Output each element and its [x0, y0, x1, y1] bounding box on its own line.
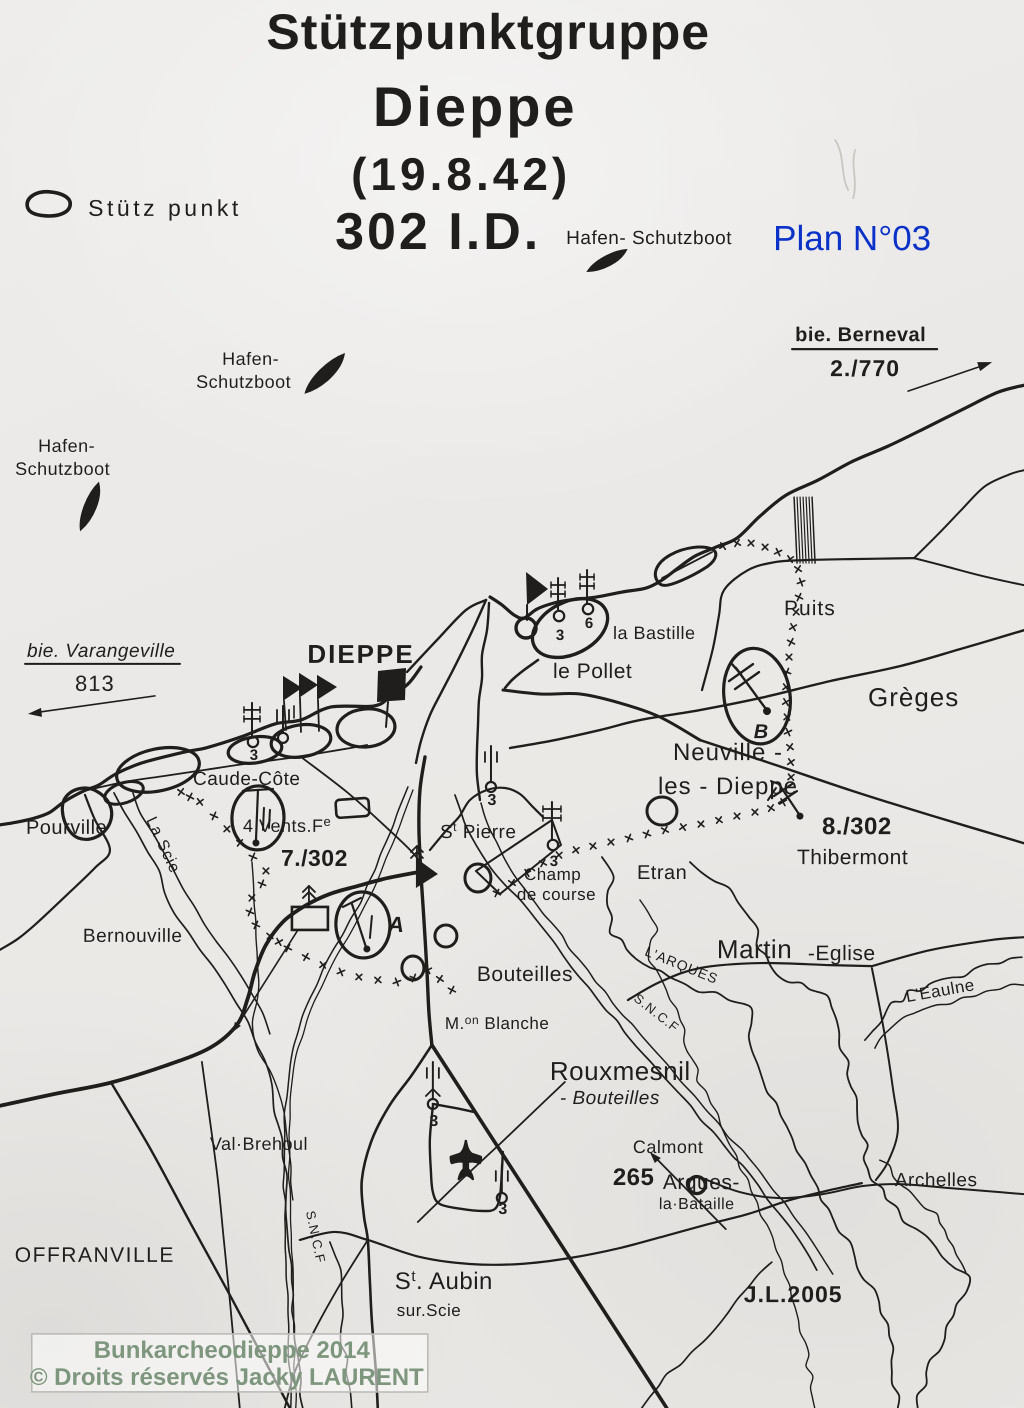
- svg-text:Stütz punkt: Stütz punkt: [88, 195, 242, 221]
- svg-text:3: 3: [250, 747, 258, 764]
- svg-text:Stützpunktgruppe: Stützpunktgruppe: [266, 4, 710, 60]
- svg-text:Dieppe: Dieppe: [373, 75, 578, 138]
- svg-text:302 I.D.: 302 I.D.: [335, 203, 541, 261]
- svg-text:bie. Varangeville: bie. Varangeville: [27, 641, 175, 662]
- svg-text:Val·Brehoul: Val·Brehoul: [210, 1134, 308, 1154]
- svg-text:Bouteilles: Bouteilles: [477, 963, 573, 986]
- svg-text:Martin: Martin: [717, 934, 792, 964]
- svg-text:2./770: 2./770: [830, 355, 900, 381]
- svg-text:Hafen-: Hafen-: [38, 436, 95, 456]
- svg-text:St. Aubin: St. Aubin: [395, 1268, 493, 1295]
- svg-text:L'ARQUES: L'ARQUES: [643, 943, 721, 987]
- svg-text:7./302: 7./302: [281, 845, 348, 871]
- svg-text:-Eglise: -Eglise: [808, 942, 876, 965]
- svg-text:© Droits réservés Jacky LAUREN: © Droits réservés Jacky LAURENT: [30, 1364, 424, 1391]
- svg-text:Archelles: Archelles: [895, 1170, 978, 1191]
- svg-text:3: 3: [556, 627, 564, 644]
- svg-text:OFFRANVILLE: OFFRANVILLE: [15, 1244, 175, 1267]
- svg-text:Schutzboot: Schutzboot: [15, 459, 110, 479]
- svg-text:A: A: [387, 912, 404, 937]
- svg-text:B: B: [754, 721, 768, 743]
- svg-text:Thibermont: Thibermont: [797, 846, 908, 869]
- svg-text:Hafen-: Hafen-: [222, 349, 279, 369]
- svg-text:Etran: Etran: [637, 862, 687, 884]
- svg-text:Bernouville: Bernouville: [83, 926, 183, 947]
- svg-text:le Pollet: le Pollet: [553, 660, 632, 683]
- svg-text:6: 6: [585, 615, 593, 632]
- svg-text:bie. Berneval: bie. Berneval: [795, 324, 926, 346]
- svg-text:Grèges: Grèges: [868, 682, 959, 712]
- svg-text:La Scie: La Scie: [142, 814, 183, 876]
- svg-text:265: 265: [613, 1164, 655, 1191]
- svg-text:M.on Blanche: M.on Blanche: [445, 1013, 549, 1033]
- svg-text:Hafen- Schutzboot: Hafen- Schutzboot: [566, 228, 732, 249]
- svg-text:sur.Scie: sur.Scie: [397, 1301, 461, 1320]
- svg-text:8./302: 8./302: [822, 813, 892, 840]
- svg-text:Caude-Côte: Caude-Côte: [193, 769, 300, 790]
- svg-text:3: 3: [488, 792, 497, 809]
- svg-text:St Pierre: St Pierre: [440, 820, 517, 843]
- svg-text:(19.8.42): (19.8.42): [351, 148, 571, 200]
- svg-text:la Bastille: la Bastille: [613, 623, 696, 643]
- svg-text:Puits: Puits: [784, 597, 836, 620]
- svg-text:3: 3: [498, 1201, 507, 1218]
- svg-text:Schutzboot: Schutzboot: [196, 372, 291, 392]
- svg-text:les - Dieppe: les - Dieppe: [658, 773, 798, 800]
- svg-text:S.N.C.F: S.N.C.F: [631, 991, 682, 1036]
- svg-text:Calmont: Calmont: [633, 1137, 704, 1157]
- svg-text:Rouxmesnil: Rouxmesnil: [550, 1056, 691, 1086]
- svg-text:Plan N°03: Plan N°03: [773, 219, 931, 258]
- svg-text:- Bouteilles: - Bouteilles: [560, 1088, 660, 1109]
- svg-text:813: 813: [75, 671, 115, 696]
- svg-text:Bunkarcheodieppe 2014: Bunkarcheodieppe 2014: [94, 1337, 371, 1364]
- svg-text:DIEPPE: DIEPPE: [307, 639, 414, 669]
